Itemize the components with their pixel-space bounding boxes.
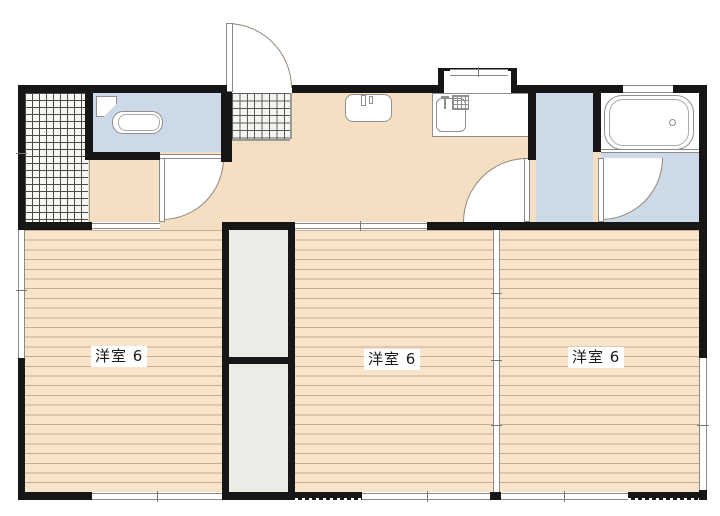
window-tick — [564, 491, 565, 502]
window-tick — [157, 491, 158, 502]
window-tick — [697, 425, 709, 426]
wall-bottom-2 — [222, 492, 295, 500]
genkan-tile-floor — [232, 93, 290, 139]
washroom-strip-floor — [536, 93, 593, 222]
genkan-step-edge — [232, 139, 290, 141]
room1-left-window — [18, 230, 25, 358]
room2-room3-partition — [493, 230, 500, 492]
wall-bottom-shutter-2 — [628, 492, 699, 500]
window-tick — [478, 67, 479, 77]
partition-tick — [491, 360, 502, 361]
room2-bottom-window — [362, 493, 490, 500]
washroom-strip-right-wall — [593, 85, 601, 152]
kitchen-bay-wall-left — [438, 68, 444, 93]
room1-door-threshold — [160, 222, 222, 230]
bathroom-right-wall — [221, 92, 232, 162]
room1-label: 洋室 6 — [91, 346, 147, 367]
kitchen-bay-wall-right — [511, 68, 517, 93]
wall-bottom-1 — [18, 492, 92, 500]
washroom-right-door-leaf — [598, 158, 604, 222]
bath-window — [623, 85, 673, 93]
washbasin-faucet-icon2 — [369, 96, 373, 104]
wall-left-2 — [18, 358, 25, 497]
entrance-door-swing-arc — [227, 23, 292, 88]
room3-label: 洋室 6 — [568, 347, 624, 368]
closet-top — [229, 230, 288, 357]
tile-hall-boundary — [89, 160, 90, 222]
room1-sliding-opening — [92, 223, 160, 229]
washroom-right-sill — [601, 149, 699, 153]
kitchen-faucet-icon-bar — [441, 96, 449, 98]
partition-tick — [491, 425, 502, 426]
kitchen-bay-window — [450, 69, 508, 76]
tiled-storage-floor — [25, 93, 88, 222]
partition-tick — [491, 293, 502, 294]
dish-rack-icon — [452, 95, 469, 110]
room2-sliding-door — [295, 223, 427, 229]
bathroom-door-sill — [160, 154, 221, 159]
wall-right-2 — [699, 490, 707, 500]
genkan-right-edge — [290, 93, 292, 139]
bathtub-large-inner — [609, 99, 689, 146]
wall-top-1 — [18, 85, 227, 93]
sliding-door-tick — [360, 221, 361, 231]
drain-icon — [669, 119, 676, 126]
washbasin-faucet-icon — [361, 95, 366, 106]
wall-joint-tick — [16, 153, 27, 154]
floor-plan: 洋室 6 洋室 6 洋室 6 — [0, 0, 720, 516]
window-tick — [16, 290, 27, 291]
bathroom-left-wall — [85, 85, 93, 160]
wall-bottom-shutter-1 — [295, 492, 362, 500]
room2-label: 洋室 6 — [364, 349, 420, 370]
bathtub-small-inner — [118, 114, 160, 131]
wall-top-2 — [292, 85, 438, 93]
closet-bottom — [229, 364, 288, 493]
bathroom-bottom-wall — [85, 152, 160, 160]
entrance-door-leaf — [226, 23, 233, 92]
bathroom-left-door-leaf — [159, 158, 165, 222]
wall-bottom-post — [490, 492, 501, 500]
divider-wall-2 — [427, 222, 707, 230]
washroom-strip-door-leaf — [524, 158, 530, 222]
divider-wall-1 — [18, 222, 92, 230]
washroom-strip-left-wall — [528, 85, 536, 160]
window-tick — [427, 491, 428, 502]
wall-left-1 — [18, 85, 25, 230]
room3-right-window — [699, 358, 707, 490]
